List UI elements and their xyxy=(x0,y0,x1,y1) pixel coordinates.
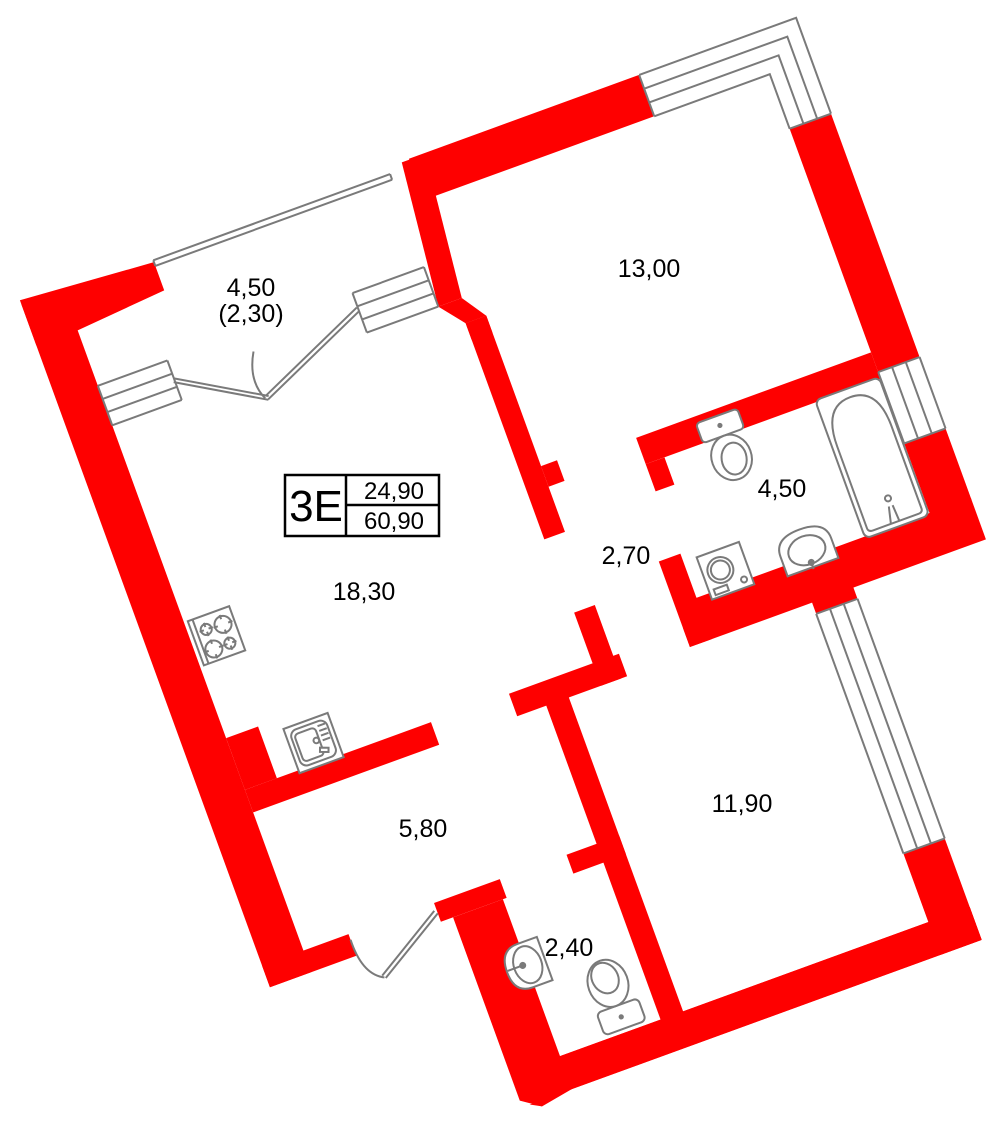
svg-text:2,40: 2,40 xyxy=(545,934,594,962)
svg-text:4,50: 4,50 xyxy=(758,475,807,503)
svg-text:4,50: 4,50 xyxy=(227,274,276,302)
svg-text:(2,30): (2,30) xyxy=(218,300,283,328)
svg-text:60,90: 60,90 xyxy=(364,508,424,535)
svg-text:18,30: 18,30 xyxy=(333,578,396,606)
svg-text:3Е: 3Е xyxy=(289,482,343,531)
svg-text:24,90: 24,90 xyxy=(364,478,424,505)
svg-text:2,70: 2,70 xyxy=(602,542,651,570)
svg-text:11,90: 11,90 xyxy=(712,790,773,818)
svg-text:13,00: 13,00 xyxy=(618,255,681,283)
svg-text:5,80: 5,80 xyxy=(399,815,448,843)
